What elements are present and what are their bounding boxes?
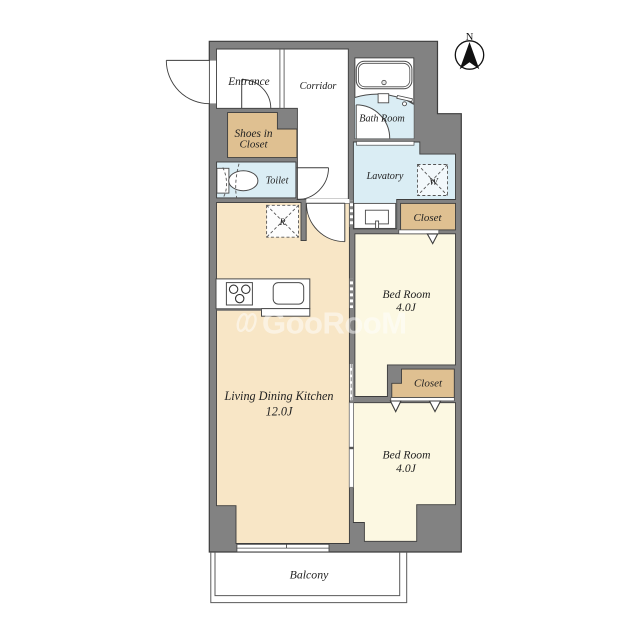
svg-text:Closet: Closet xyxy=(239,139,268,151)
svg-text:Corridor: Corridor xyxy=(300,81,337,92)
svg-text:Balcony: Balcony xyxy=(290,568,329,582)
svg-text:W: W xyxy=(429,177,439,188)
svg-text:R: R xyxy=(279,217,286,228)
svg-text:Closet: Closet xyxy=(413,212,442,224)
svg-text:GooRooM: GooRooM xyxy=(262,306,407,341)
svg-text:Lavatory: Lavatory xyxy=(366,171,404,182)
svg-text:Bed Room: Bed Room xyxy=(383,288,431,301)
svg-text:Toilet: Toilet xyxy=(266,176,290,187)
svg-text:Closet: Closet xyxy=(414,378,443,390)
svg-text:Bath Room: Bath Room xyxy=(359,113,405,124)
svg-text:Living Dining Kitchen: Living Dining Kitchen xyxy=(223,389,333,403)
svg-text:N: N xyxy=(466,32,474,43)
svg-text:4.0J: 4.0J xyxy=(396,462,416,475)
svg-text:Bed Room: Bed Room xyxy=(383,449,431,462)
svg-text:4.0J: 4.0J xyxy=(396,301,416,314)
svg-text:Entrance: Entrance xyxy=(227,76,269,88)
svg-text:12.0J: 12.0J xyxy=(266,405,293,419)
